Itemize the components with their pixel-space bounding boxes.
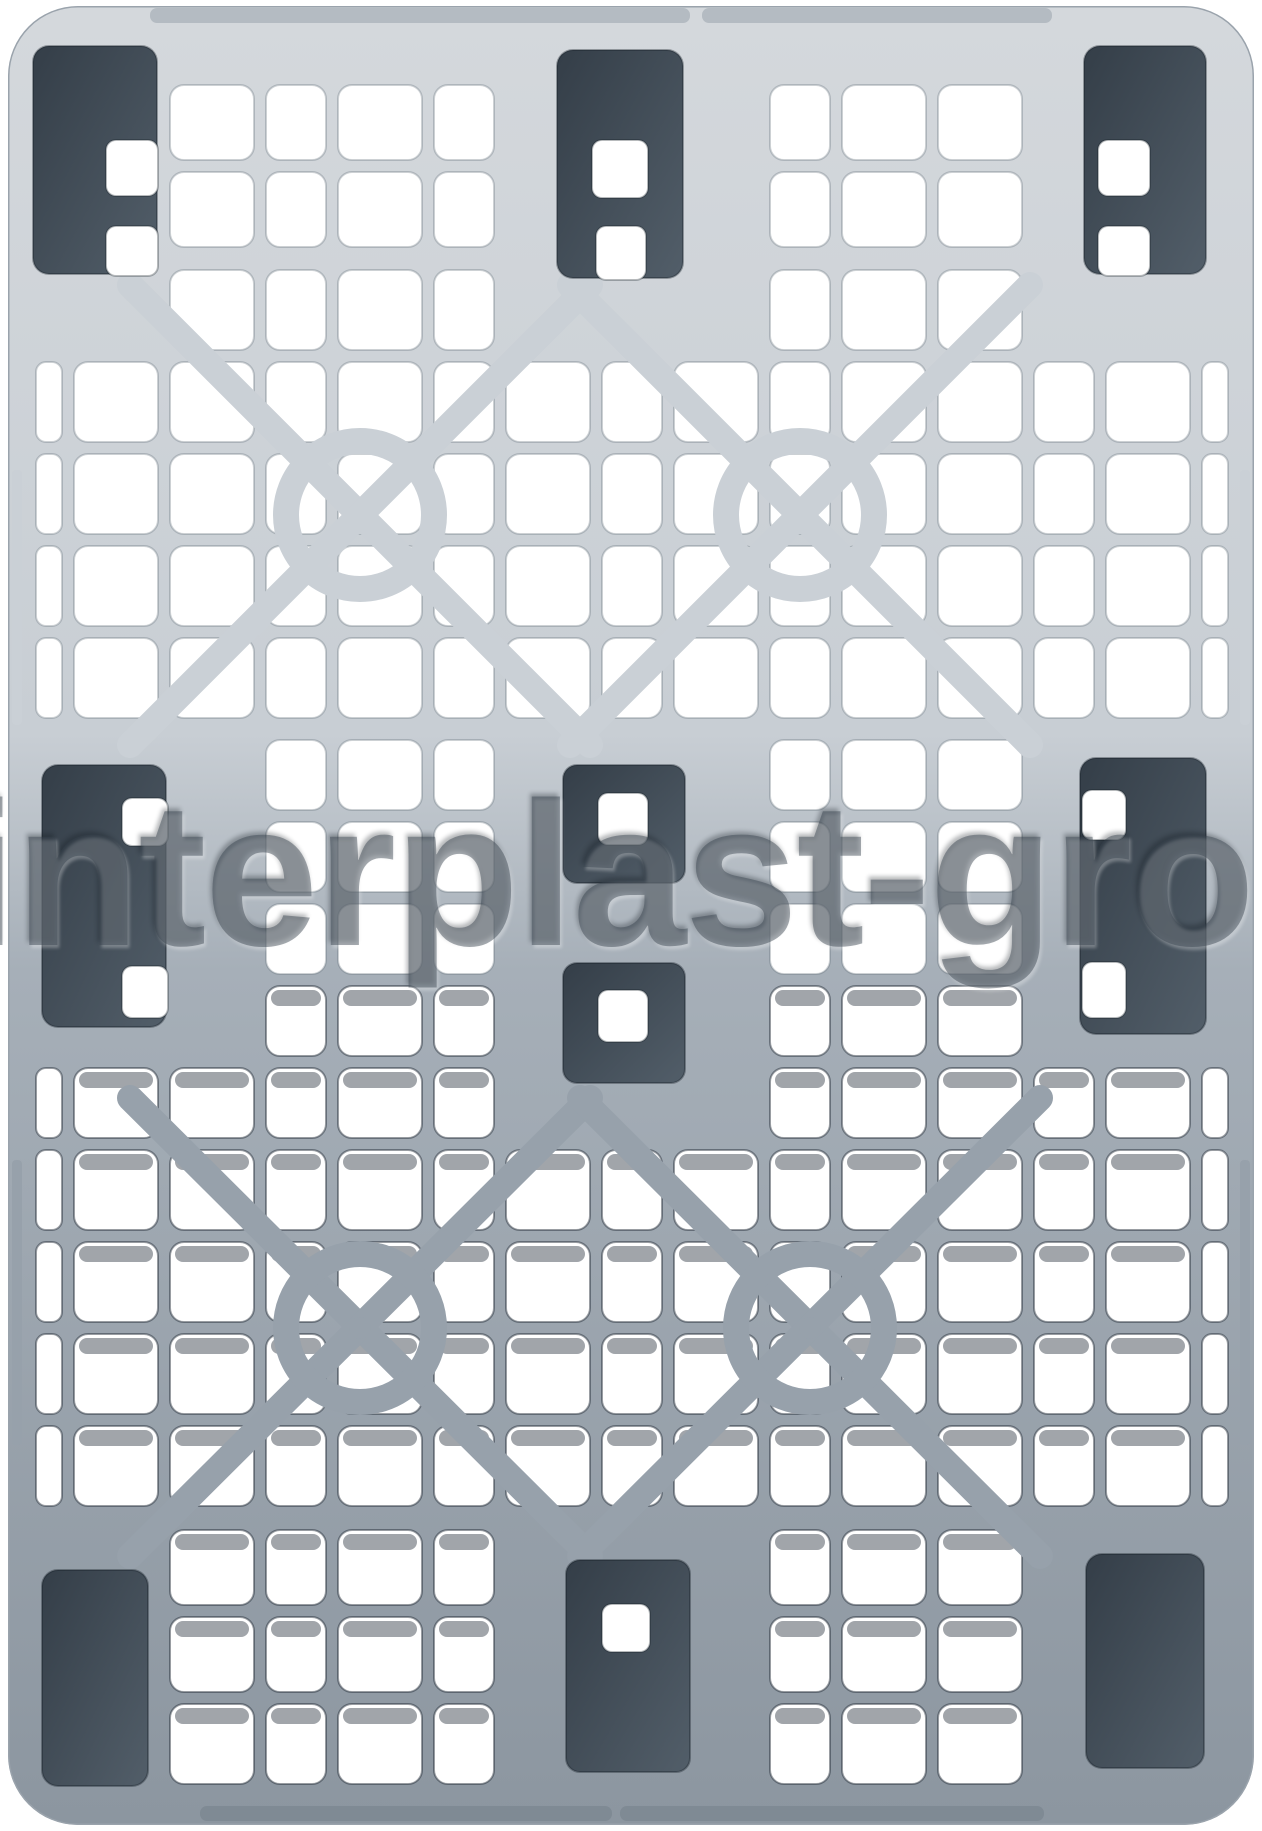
deck-hole: [602, 546, 662, 626]
deck-hole: [170, 546, 254, 626]
deck-hole-shadow: [943, 1621, 1017, 1637]
deck-hole-shadow: [511, 1338, 585, 1354]
foot-window: [598, 990, 648, 1042]
deck-hole: [434, 172, 494, 247]
deck-hole-shadow: [607, 1246, 657, 1262]
deck-hole-shadow: [775, 990, 825, 1006]
deck-hole: [434, 270, 494, 350]
deck-hole-shadow: [775, 1072, 825, 1088]
deck-hole-shadow: [847, 1621, 921, 1637]
deck-hole: [266, 172, 326, 247]
deck-hole: [36, 1426, 62, 1506]
deck-hole-shadow: [175, 1708, 249, 1724]
deck-hole: [938, 454, 1022, 534]
deck-hole: [36, 1242, 62, 1322]
deck-hole-shadow: [847, 1534, 921, 1550]
deck-hole: [770, 822, 830, 892]
deck-hole: [1202, 362, 1228, 442]
deck-hole-shadow: [943, 1072, 1017, 1088]
deck-hole-shadow: [511, 1430, 585, 1446]
deck-hole: [1106, 362, 1190, 442]
deck-hole: [842, 172, 926, 247]
foot-window: [106, 140, 158, 196]
deck-hole: [506, 454, 590, 534]
deck-hole-shadow: [847, 990, 921, 1006]
deck-hole: [842, 270, 926, 350]
deck-hole: [938, 546, 1022, 626]
edge-tab-left-upper: [12, 470, 22, 725]
deck-hole-shadow: [79, 1338, 153, 1354]
deck-hole: [338, 85, 422, 160]
deck-hole-shadow: [271, 1708, 321, 1724]
deck-hole-shadow: [775, 1621, 825, 1637]
foot-window: [598, 793, 648, 845]
deck-hole-shadow: [847, 1708, 921, 1724]
deck-hole: [1202, 1068, 1228, 1138]
product-photo-stage: interplast-gro: [0, 0, 1262, 1831]
foot-window: [122, 966, 168, 1018]
foot-bottom-left: [42, 1570, 148, 1786]
edge-tab-right-upper: [1240, 470, 1250, 725]
foot-bottom-center: [566, 1560, 690, 1772]
deck-hole-shadow: [775, 1154, 825, 1170]
deck-hole: [1202, 546, 1228, 626]
deck-hole: [74, 454, 158, 534]
deck-hole-shadow: [175, 1072, 249, 1088]
deck-hole: [338, 638, 422, 718]
foot-window: [1082, 790, 1126, 840]
deck-hole-shadow: [775, 1708, 825, 1724]
deck-hole: [36, 1150, 62, 1230]
deck-hole: [1202, 1242, 1228, 1322]
deck-hole: [36, 1334, 62, 1414]
deck-hole: [842, 638, 926, 718]
foot-window: [1098, 226, 1150, 276]
deck-hole: [1202, 1150, 1228, 1230]
deck-hole: [938, 172, 1022, 247]
deck-hole: [938, 740, 1022, 810]
deck-hole-shadow: [79, 1072, 153, 1088]
edge-tab-bottom-left: [200, 1806, 612, 1821]
deck-hole-shadow: [1111, 1154, 1185, 1170]
edge-tab-right-lower: [1240, 1160, 1250, 1445]
deck-hole-shadow: [679, 1154, 753, 1170]
deck-hole-shadow: [1039, 1072, 1089, 1088]
deck-hole-shadow: [439, 1534, 489, 1550]
deck-hole: [938, 904, 1022, 974]
deck-hole: [1106, 546, 1190, 626]
deck-hole-shadow: [1111, 1072, 1185, 1088]
deck-hole: [266, 822, 326, 892]
deck-hole: [770, 904, 830, 974]
deck-hole: [266, 85, 326, 160]
edge-tab-top-left: [150, 8, 690, 23]
deck-hole: [74, 546, 158, 626]
deck-hole-shadow: [1039, 1154, 1089, 1170]
deck-hole: [674, 638, 758, 718]
deck-hole: [36, 1068, 62, 1138]
deck-hole-shadow: [943, 990, 1017, 1006]
deck-hole: [938, 822, 1022, 892]
pallet-product-photo: interplast-gro: [0, 0, 1262, 1831]
deck-hole: [842, 822, 926, 892]
deck-hole: [266, 638, 326, 718]
deck-hole: [338, 822, 422, 892]
edge-tab-top-right: [702, 8, 1052, 23]
deck-hole-shadow: [1039, 1246, 1089, 1262]
deck-hole: [602, 454, 662, 534]
deck-hole-shadow: [343, 990, 417, 1006]
deck-hole: [1034, 362, 1094, 442]
deck-hole-shadow: [343, 1534, 417, 1550]
deck-hole: [434, 904, 494, 974]
deck-hole: [1106, 454, 1190, 534]
deck-hole-shadow: [439, 1621, 489, 1637]
deck-hole: [938, 85, 1022, 160]
deck-hole: [1106, 638, 1190, 718]
deck-hole: [170, 454, 254, 534]
deck-hole: [770, 172, 830, 247]
deck-hole-shadow: [271, 1072, 321, 1088]
deck-hole-shadow: [343, 1072, 417, 1088]
deck-hole: [506, 546, 590, 626]
foot-window: [122, 798, 168, 846]
deck-hole: [36, 638, 62, 718]
deck-hole-shadow: [943, 1338, 1017, 1354]
deck-hole-shadow: [175, 1338, 249, 1354]
deck-hole: [1034, 546, 1094, 626]
deck-hole-shadow: [943, 1708, 1017, 1724]
deck-hole-shadow: [775, 1534, 825, 1550]
deck-hole-shadow: [271, 1534, 321, 1550]
deck-hole-shadow: [943, 1430, 1017, 1446]
deck-hole: [1034, 454, 1094, 534]
deck-hole-shadow: [79, 1154, 153, 1170]
foot-window: [1098, 140, 1150, 196]
deck-hole-shadow: [1111, 1246, 1185, 1262]
deck-hole-shadow: [439, 1154, 489, 1170]
deck-hole: [338, 270, 422, 350]
deck-hole-shadow: [1039, 1338, 1089, 1354]
deck-hole-shadow: [271, 1430, 321, 1446]
deck-hole: [434, 740, 494, 810]
deck-hole-shadow: [1111, 1430, 1185, 1446]
deck-hole: [338, 740, 422, 810]
deck-hole-shadow: [1111, 1338, 1185, 1354]
deck-hole: [842, 85, 926, 160]
deck-hole-shadow: [439, 1708, 489, 1724]
deck-hole-shadow: [271, 1154, 321, 1170]
deck-hole: [1202, 1426, 1228, 1506]
deck-hole-shadow: [343, 1154, 417, 1170]
deck-hole-shadow: [1039, 1430, 1089, 1446]
deck-hole-shadow: [175, 1534, 249, 1550]
deck-hole: [338, 904, 422, 974]
deck-hole: [266, 740, 326, 810]
deck-hole: [74, 638, 158, 718]
deck-hole-shadow: [607, 1338, 657, 1354]
foot-window: [1082, 962, 1126, 1018]
deck-hole: [338, 172, 422, 247]
deck-hole: [1202, 638, 1228, 718]
edge-tab-left-lower: [12, 1160, 22, 1445]
deck-hole: [36, 546, 62, 626]
foot-window: [596, 226, 646, 280]
pallet-graphic: [0, 0, 1262, 1831]
deck-hole-shadow: [511, 1246, 585, 1262]
deck-hole-shadow: [343, 1708, 417, 1724]
deck-hole-shadow: [175, 1246, 249, 1262]
deck-hole-shadow: [943, 1246, 1017, 1262]
deck-hole: [1202, 1334, 1228, 1414]
deck-hole-shadow: [175, 1621, 249, 1637]
deck-hole-shadow: [847, 1154, 921, 1170]
foot-window: [592, 140, 648, 198]
deck-hole: [434, 822, 494, 892]
deck-hole: [770, 740, 830, 810]
deck-hole-shadow: [271, 1621, 321, 1637]
deck-hole: [770, 270, 830, 350]
deck-hole-shadow: [847, 1072, 921, 1088]
foot-window: [602, 1604, 650, 1652]
deck-hole: [36, 362, 62, 442]
foot-window: [106, 226, 158, 276]
deck-hole-shadow: [775, 1430, 825, 1446]
deck-hole-shadow: [607, 1430, 657, 1446]
deck-hole: [842, 904, 926, 974]
deck-hole-shadow: [79, 1430, 153, 1446]
foot-bottom-right: [1086, 1554, 1204, 1768]
deck-hole: [170, 172, 254, 247]
deck-hole: [1202, 454, 1228, 534]
deck-hole: [266, 904, 326, 974]
deck-hole: [770, 85, 830, 160]
deck-hole-shadow: [439, 1338, 489, 1354]
deck-hole: [434, 85, 494, 160]
edge-tab-bottom-right: [620, 1806, 1044, 1821]
deck-hole: [770, 638, 830, 718]
deck-hole-shadow: [439, 1072, 489, 1088]
deck-hole: [842, 740, 926, 810]
deck-hole: [74, 362, 158, 442]
deck-hole: [1034, 638, 1094, 718]
deck-hole-shadow: [439, 990, 489, 1006]
deck-hole: [36, 454, 62, 534]
deck-hole-shadow: [271, 990, 321, 1006]
pallet-body: [8, 6, 1254, 1825]
deck-hole-shadow: [343, 1430, 417, 1446]
deck-hole-shadow: [79, 1246, 153, 1262]
deck-hole-shadow: [343, 1621, 417, 1637]
deck-hole: [170, 85, 254, 160]
deck-hole: [266, 270, 326, 350]
